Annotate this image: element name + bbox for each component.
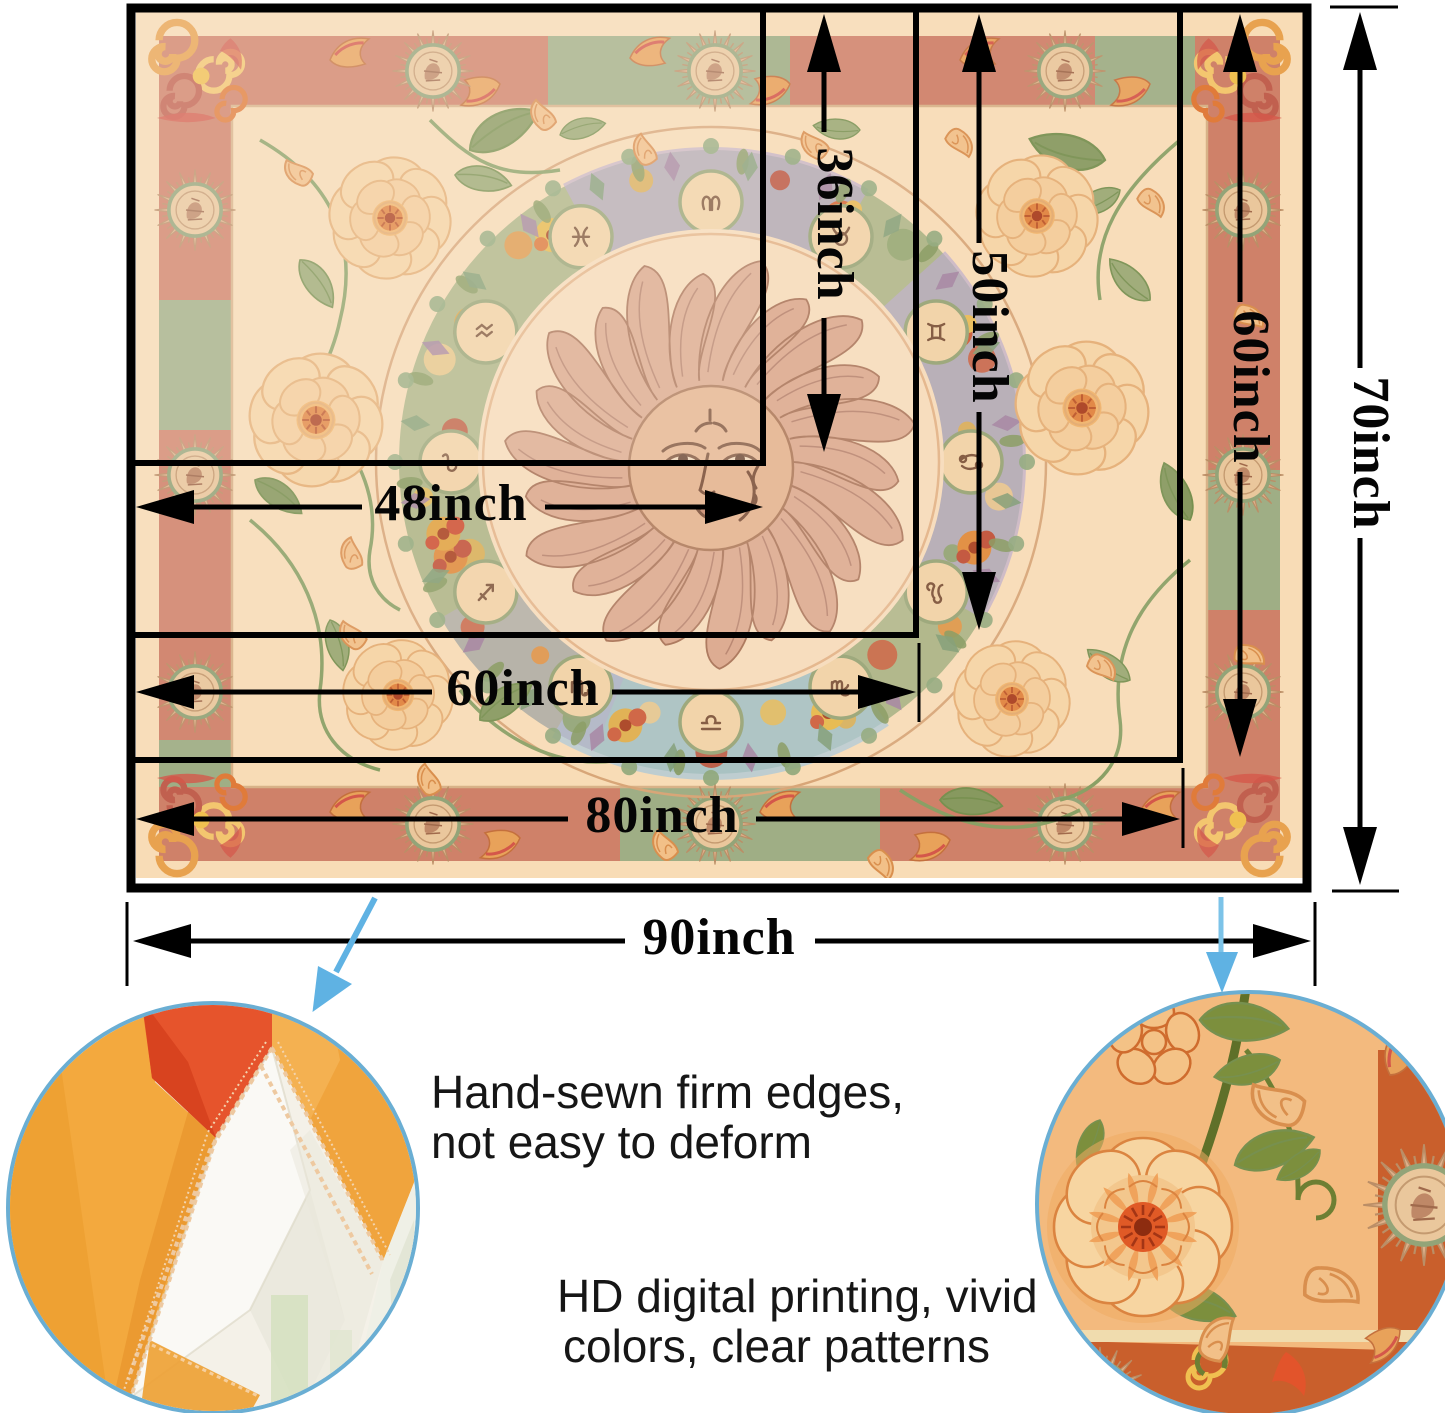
svg-text:48inch: 48inch — [374, 475, 527, 532]
svg-text:60inch: 60inch — [1222, 310, 1279, 463]
svg-text:colors, clear patterns: colors, clear patterns — [563, 1320, 990, 1372]
svg-text:36inch: 36inch — [806, 147, 863, 300]
svg-text:80inch: 80inch — [585, 787, 738, 844]
svg-text:Hand-sewn firm edges,: Hand-sewn firm edges, — [431, 1066, 904, 1118]
svg-text:70inch: 70inch — [1342, 376, 1399, 529]
svg-text:not easy to deform: not easy to deform — [431, 1116, 812, 1168]
svg-text:90inch: 90inch — [642, 909, 795, 966]
svg-text:50inch: 50inch — [961, 250, 1018, 403]
svg-text:60inch: 60inch — [446, 660, 599, 717]
svg-text:HD digital printing, vivid: HD digital printing, vivid — [557, 1270, 1038, 1322]
